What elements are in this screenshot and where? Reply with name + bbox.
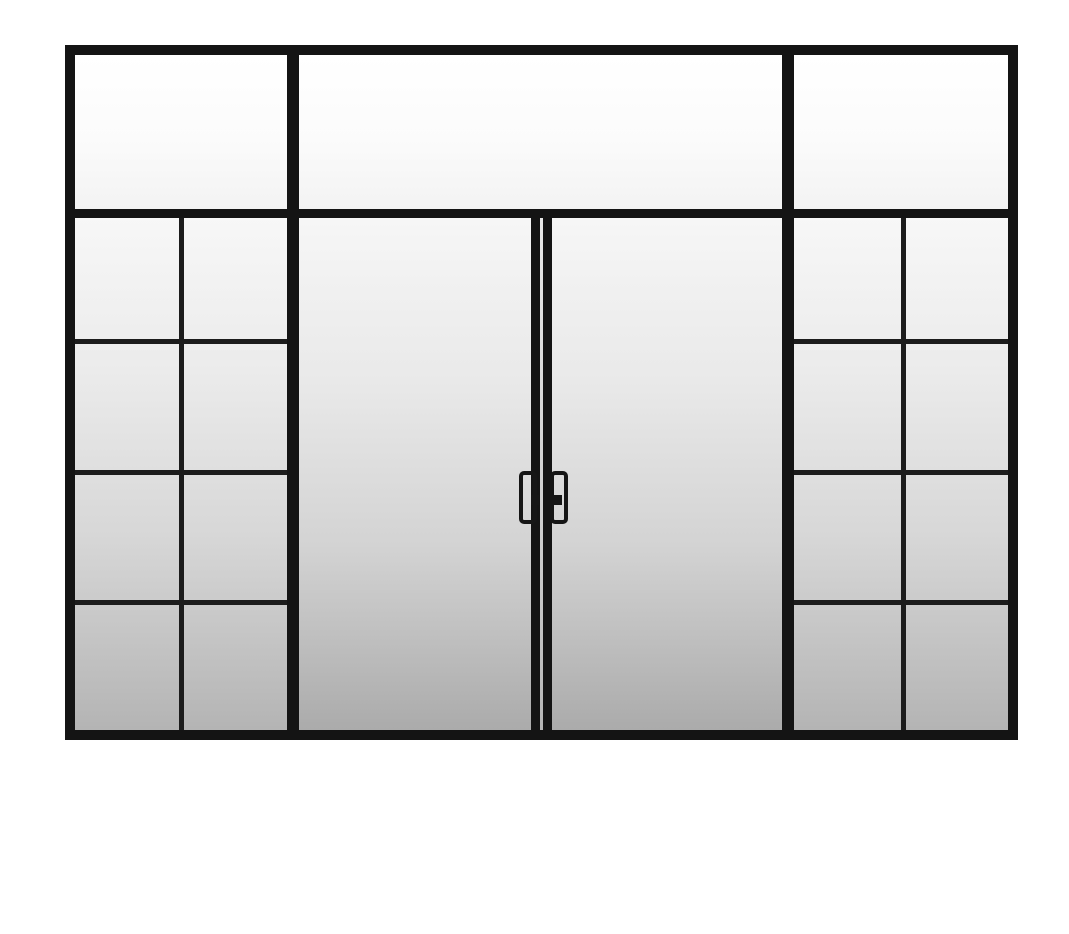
steel-door-unit [65, 45, 1018, 740]
sidelight-right-muntin-row1 [794, 339, 1008, 344]
door-left-glass [299, 218, 531, 730]
sidelight-left-muntin-row3 [75, 600, 287, 605]
frame-top-rail [65, 45, 1018, 55]
door-left-handle-latch [531, 495, 539, 505]
frame-left-jamb [65, 45, 75, 740]
frame-left-mullion [287, 45, 299, 740]
product-photo [0, 0, 1069, 934]
door-right-handle-latch [554, 495, 562, 505]
sidelight-left-muntin-row1 [75, 339, 287, 344]
frame-right-jamb [1008, 45, 1018, 740]
transom-pane-left [75, 55, 287, 209]
door-right-glass [552, 218, 782, 730]
sidelight-right-muntin-row3 [794, 600, 1008, 605]
sidelight-left-muntin-row2 [75, 470, 287, 475]
transom-pane-center [299, 55, 782, 209]
sidelight-right-muntin-row2 [794, 470, 1008, 475]
frame-transom-rail [65, 209, 1018, 218]
transom-pane-right [794, 55, 1008, 209]
frame-bottom-rail [65, 730, 1018, 740]
frame-right-mullion [782, 45, 794, 740]
